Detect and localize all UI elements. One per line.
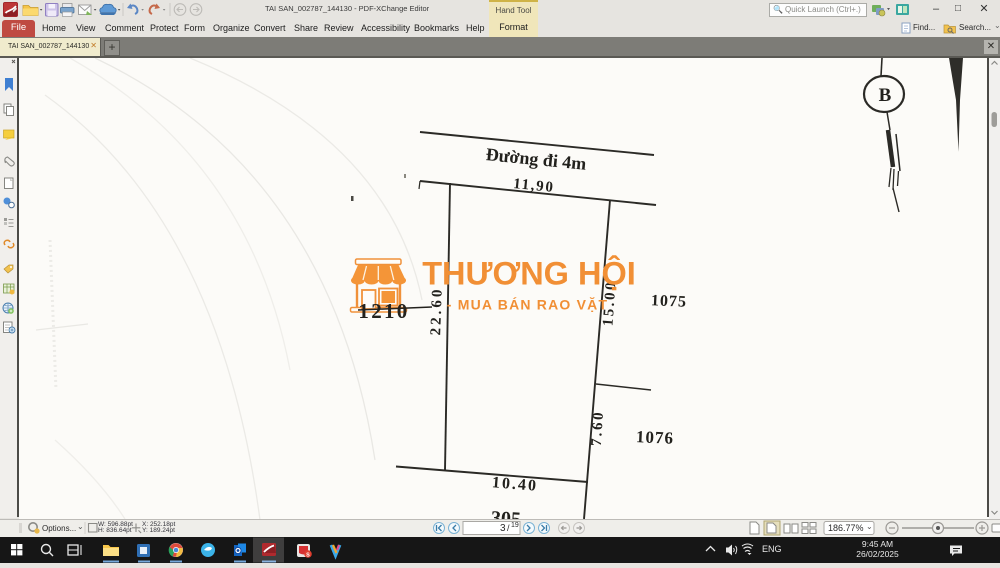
- svg-text:1210: 1210: [358, 299, 409, 323]
- svg-text:305: 305: [490, 507, 521, 519]
- svg-text:10.40: 10.40: [491, 474, 538, 495]
- svg-text:S: S: [306, 553, 310, 559]
- svg-text:Đường đi 4m: Đường đi 4m: [485, 144, 587, 174]
- svg-text:1075: 1075: [651, 292, 688, 311]
- svg-text:22.60: 22.60: [428, 286, 446, 335]
- svg-text:7.60: 7.60: [589, 409, 607, 446]
- svg-text:B: B: [879, 85, 892, 106]
- svg-text:- MUA BÁN RAO VẶT: - MUA BÁN RAO VẶT: [447, 297, 608, 313]
- svg-text:THƯƠNG HỘI: THƯƠNG HỘI: [422, 254, 636, 292]
- svg-text:1076: 1076: [636, 427, 675, 448]
- svg-text:11,90: 11,90: [513, 176, 556, 196]
